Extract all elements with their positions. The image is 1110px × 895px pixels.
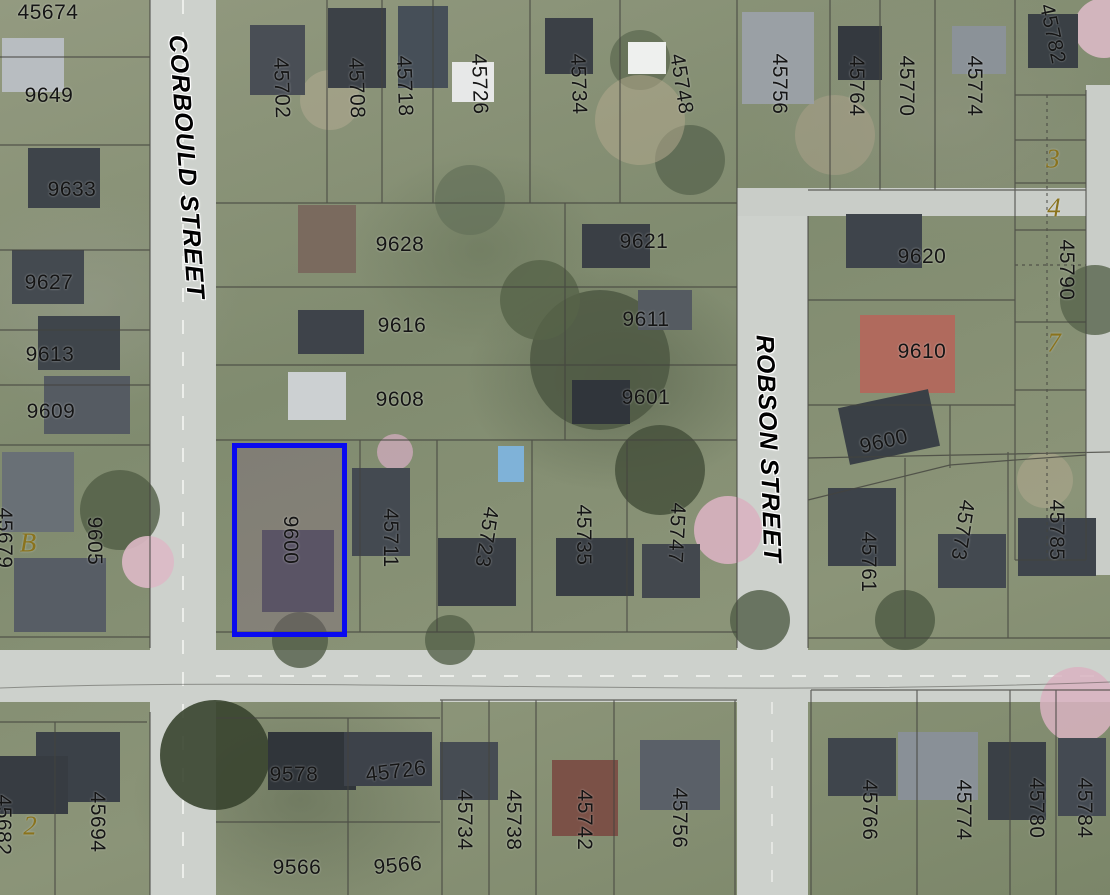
highlighted-parcel[interactable]: 9600: [232, 443, 347, 637]
highlighted-parcel-label: 9600: [278, 516, 302, 565]
aerial-parcel-map[interactable]: 9600 45674964996339627961396099605456794…: [0, 0, 1110, 895]
aerial-imagery-layer: [0, 0, 1110, 895]
